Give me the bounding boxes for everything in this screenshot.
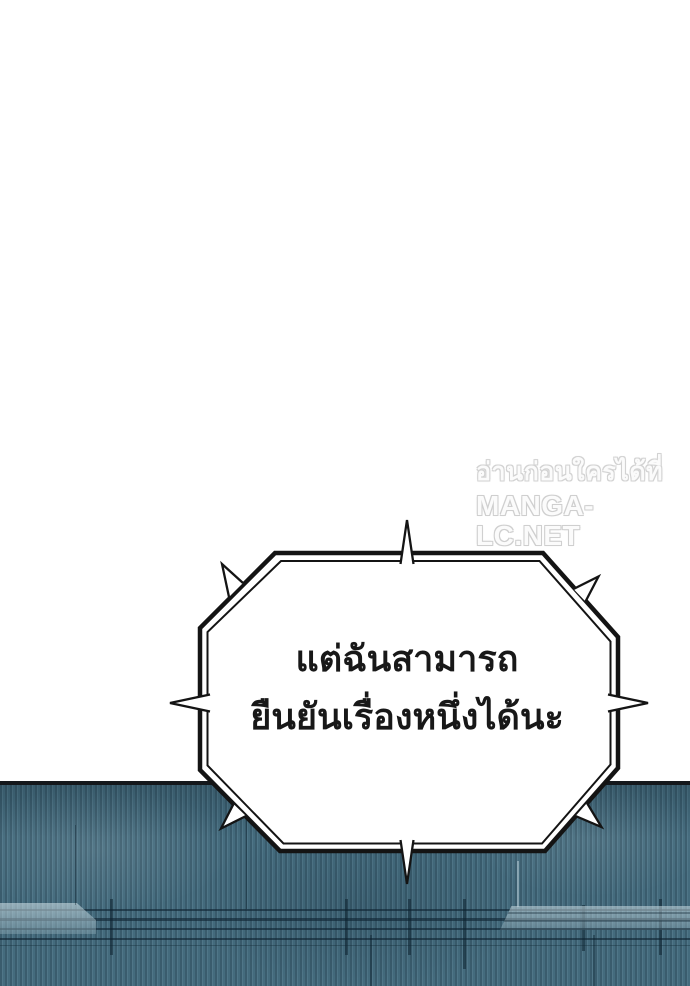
pipe-connector [345,899,348,955]
speech-bubble-text: แต่ฉันสามารถ ยืนยันเรื่องหนึ่งได้นะ [207,630,607,747]
manga-page: อ่านก่อนใครได้ที่ MANGA-LC.NET [0,0,690,986]
wall-seam [593,935,595,986]
pipe-connector [110,899,113,955]
wall-seam [370,935,372,986]
watermark-tagline: อ่านก่อนใครได้ที่ [476,459,690,491]
dialogue-line-2: ยืนยันเรื่องหนึ่งได้นะ [250,688,564,746]
wall-seam [75,825,76,905]
pipe-connector [463,899,466,969]
wall-duct-left [0,903,96,934]
pipe-connector [408,899,411,955]
wall-duct-right [500,906,690,930]
dialogue-line-1: แต่ฉันสามารถ [296,630,519,688]
